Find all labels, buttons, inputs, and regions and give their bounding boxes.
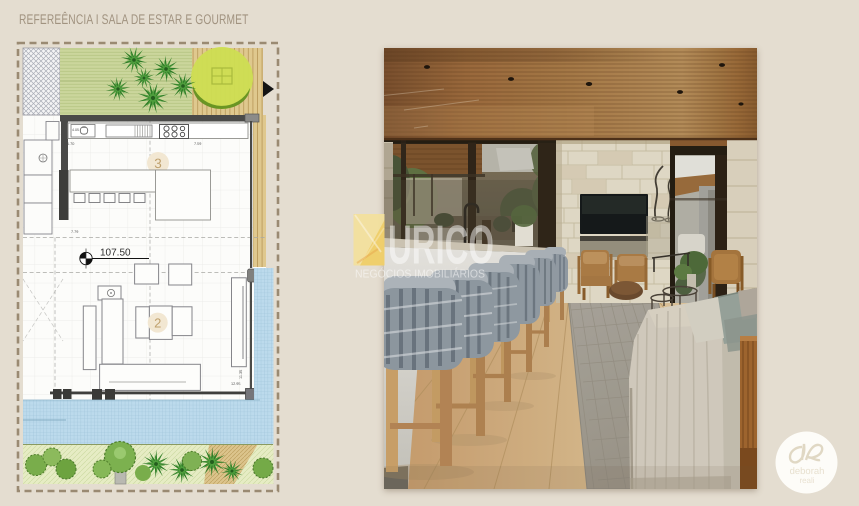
svg-text:4.05: 4.05 [72,128,79,132]
svg-text:11.35: 11.35 [239,370,243,379]
svg-text:7.59: 7.59 [194,142,201,146]
svg-text:7.79: 7.79 [71,230,78,234]
svg-text:107.50: 107.50 [100,248,131,259]
svg-text:12.95: 12.95 [231,382,241,386]
svg-text:2: 2 [154,315,161,330]
svg-text:reali: reali [799,476,814,485]
svg-text:3: 3 [154,156,162,171]
svg-text:1.70: 1.70 [67,142,74,146]
